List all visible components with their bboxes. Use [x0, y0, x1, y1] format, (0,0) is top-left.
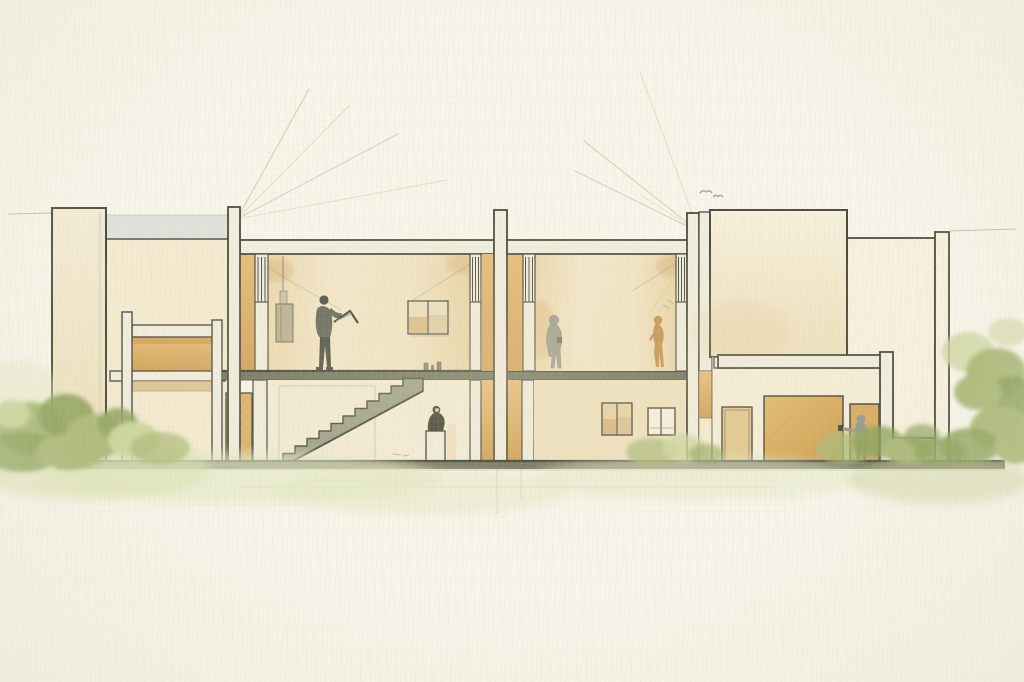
vessel	[431, 365, 434, 370]
annex-roof-beam	[132, 325, 213, 337]
wood-strip	[482, 254, 494, 371]
figure-shoe	[316, 367, 323, 370]
figure-shoe	[326, 367, 333, 370]
clerestory-mullion-right	[470, 254, 481, 371]
vessel	[437, 362, 441, 370]
window-pane	[603, 419, 616, 434]
figure-head	[857, 415, 866, 424]
two-panel-painting	[408, 301, 450, 336]
shrub	[130, 432, 190, 464]
right-gallery	[507, 240, 698, 371]
gallery-left-wood-strip	[240, 254, 255, 371]
door-frame	[722, 407, 752, 463]
clerestory-mullion-left	[255, 254, 268, 371]
painting-pane-right	[429, 315, 447, 333]
clerestory-mullion-left	[523, 254, 535, 371]
wood-screen	[699, 371, 712, 418]
vessel	[424, 363, 428, 370]
lower-window-left	[602, 403, 632, 435]
wood-strip	[507, 255, 523, 371]
shrub	[914, 438, 966, 466]
scroll-panel	[276, 304, 293, 342]
figure-head	[549, 315, 559, 325]
lower-left-gallery	[226, 379, 470, 464]
hand-object	[838, 425, 843, 431]
left-gallery	[240, 240, 494, 371]
lower-column	[522, 380, 534, 463]
gallery-roof-beam	[240, 240, 494, 254]
clerestory-mullion-right	[676, 254, 687, 371]
figure-head	[654, 316, 663, 325]
block-wash	[690, 300, 790, 360]
lower-column	[470, 380, 481, 463]
window-pane	[618, 417, 631, 434]
statue-shadow	[447, 424, 456, 461]
watercolor-section-illustration	[0, 0, 1024, 682]
lower-window-right	[648, 408, 675, 435]
shrub	[36, 434, 104, 470]
shrub	[688, 444, 724, 464]
wood-strip	[508, 380, 522, 463]
tall-column-left	[228, 207, 240, 463]
entry-roof-beam	[718, 355, 892, 368]
upper-floor-slab	[222, 371, 710, 380]
clerestory-glass-band	[106, 215, 228, 239]
gallery-roof-beam	[507, 240, 698, 254]
held-item	[557, 337, 562, 343]
shrub	[954, 374, 1002, 410]
pedestal	[426, 431, 445, 461]
annex-shelf-band	[128, 381, 212, 391]
figure-head	[319, 295, 328, 304]
painting-pane-left	[409, 317, 427, 333]
tall-column-center	[494, 210, 507, 463]
grass-wash	[270, 470, 570, 514]
wood-strip	[481, 380, 493, 463]
annex-column	[212, 320, 222, 463]
lower-column	[253, 380, 267, 463]
slab-band	[222, 371, 710, 380]
statue-face	[435, 408, 439, 412]
scroll-rod	[280, 291, 287, 304]
section-drawing	[0, 0, 1024, 682]
entry-door-left	[722, 407, 752, 463]
